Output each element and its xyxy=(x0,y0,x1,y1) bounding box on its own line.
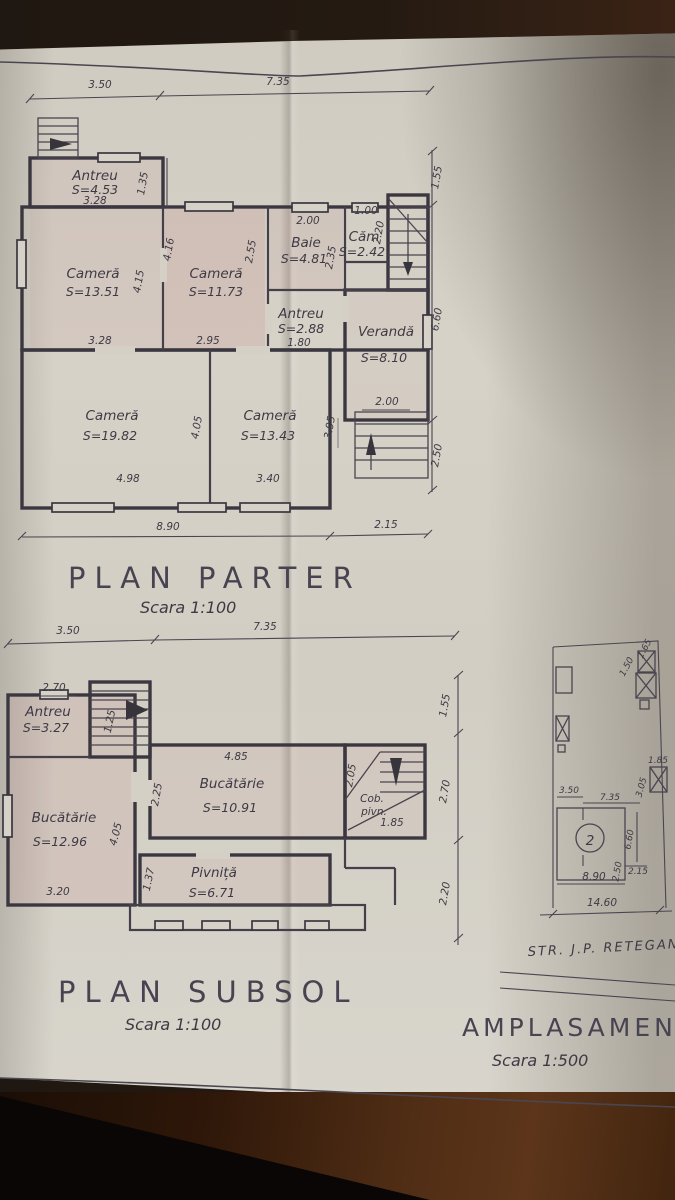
dim-house-top-right: 7.35 xyxy=(600,793,620,803)
dim-antreu2-width: 1.80 xyxy=(287,337,311,349)
dim-house-right: 6.60 xyxy=(623,829,636,851)
plan-subsol: 3.50 7.35 2.70 Antreu S=3.27 1.25 Bucătă… xyxy=(3,621,463,1034)
room-antreu2-area: S=2.88 xyxy=(278,321,324,336)
room-cob-line1: Cob. xyxy=(360,793,384,805)
room-bucatarie2-name: Bucătărie xyxy=(200,776,265,792)
parter-title: PLAN PARTER xyxy=(68,561,362,595)
dim-annex-top1: 1.50 xyxy=(618,656,636,679)
dim-cob-width: 1.85 xyxy=(380,817,404,829)
street-name: STR. J.P. RETEGAN xyxy=(527,937,675,960)
dim-subsol-top-left: 3.50 xyxy=(56,625,80,637)
subsol-scale: Scara 1:100 xyxy=(125,1015,221,1034)
dim-antreu1-width: 3.28 xyxy=(83,195,107,207)
room-veranda-area: S=8.10 xyxy=(361,350,407,365)
room-camera2-area: S=11.73 xyxy=(189,284,243,299)
dim-parter-stairs-width: 2.00 xyxy=(375,396,399,408)
dim-house-right2: 2.15 xyxy=(628,867,648,877)
room-pivnita-name: Pivniță xyxy=(191,865,237,881)
dim-bucatarie2-width: 4.85 xyxy=(224,751,248,763)
room-bucatarie2-area: S=10.91 xyxy=(203,800,257,815)
parter-scale: Scara 1:100 xyxy=(140,598,236,617)
room-pivnita-area: S=6.71 xyxy=(189,885,235,900)
dim-house-bottom: 8.90 xyxy=(582,871,606,883)
dim-site-width: 14.60 xyxy=(587,897,617,909)
parter-stairs-top-right xyxy=(388,198,428,279)
subsol-title: PLAN SUBSOL xyxy=(58,975,358,1009)
room-bucatarie1-area: S=12.96 xyxy=(33,834,87,849)
dim-camera3-height: 4.05 xyxy=(189,415,205,440)
house-number: 2 xyxy=(586,833,595,849)
plan-parter: 3.50 7.35 Antreu S=4.53 3.28 1.35 Cameră… xyxy=(17,76,445,617)
room-camera4-name: Cameră xyxy=(244,408,297,424)
dim-camera4-width: 3.40 xyxy=(256,473,280,485)
dim-camera1-width: 3.28 xyxy=(88,335,112,347)
dim-annex-right1: 1.85 xyxy=(648,756,668,766)
room-camera1-area: S=13.51 xyxy=(66,284,120,299)
room-antreu2-name: Antreu xyxy=(277,306,324,322)
room-cam-area: S=2.42 xyxy=(339,244,385,259)
dim-parter-top-right: 7.35 xyxy=(266,76,290,88)
room-subsol-antreu-name: Antreu xyxy=(24,704,71,720)
dim-camera3-width: 4.98 xyxy=(116,473,140,485)
room-camera3-name: Cameră xyxy=(86,408,139,424)
room-camera3-area: S=19.82 xyxy=(83,428,137,443)
parter-exterior-stairs-top xyxy=(38,118,78,158)
room-camera2-name: Cameră xyxy=(190,266,243,282)
dim-annex-right2: 3.05 xyxy=(635,776,650,798)
room-baie-area: S=4.81 xyxy=(281,251,327,266)
dim-subsol-antreu-width: 2.70 xyxy=(42,682,66,694)
amplasament-title: AMPLASAMENT xyxy=(462,1013,675,1042)
site-boundary xyxy=(540,641,672,918)
dim-subsol-right-bottom: 2.20 xyxy=(437,881,453,906)
room-veranda-name: Verandă xyxy=(358,324,414,340)
dim-subsol-right-top: 1.55 xyxy=(437,693,453,718)
amplasament-scale: Scara 1:500 xyxy=(492,1051,588,1070)
room-bucatarie1-name: Bucătărie xyxy=(32,810,97,826)
dim-house-bottom2: 2.50 xyxy=(611,861,624,883)
room-baie-name: Baie xyxy=(291,235,321,251)
dim-camera2-width: 2.95 xyxy=(196,335,220,347)
dim-cam-height: 2.20 xyxy=(371,220,387,245)
dim-bucatarie1-width: 3.20 xyxy=(46,886,70,898)
dim-parter-bottom-right: 2.15 xyxy=(374,519,398,531)
dim-cam-width: 1.00 xyxy=(354,205,378,217)
dim-subsol-top-right: 7.35 xyxy=(253,621,277,633)
blueprint-drawing: 3.50 7.35 Antreu S=4.53 3.28 1.35 Cameră… xyxy=(0,0,675,1200)
dim-baie-width: 2.00 xyxy=(296,215,320,227)
street-lines xyxy=(500,972,675,1001)
dim-subsol-right-mid: 2.70 xyxy=(437,779,453,804)
photographed-blueprint: 3.50 7.35 Antreu S=4.53 3.28 1.35 Cameră… xyxy=(0,0,675,1200)
site-annexes xyxy=(556,651,667,792)
dim-house-top-left: 3.50 xyxy=(559,786,579,796)
room-camera4-area: S=13.43 xyxy=(241,428,295,443)
amplasament: 1.50 1.65 1.85 3.05 3.50 7.35 2 6.60 2.1… xyxy=(462,638,675,1070)
dim-parter-top-left: 3.50 xyxy=(88,79,112,91)
room-subsol-antreu-area: S=3.27 xyxy=(23,720,69,735)
parter-exterior-stairs-bottom xyxy=(355,412,428,478)
dim-camera4-height: 3.95 xyxy=(322,415,338,440)
room-camera1-name: Cameră xyxy=(67,266,120,282)
dim-parter-bottom-left: 8.90 xyxy=(156,521,180,533)
